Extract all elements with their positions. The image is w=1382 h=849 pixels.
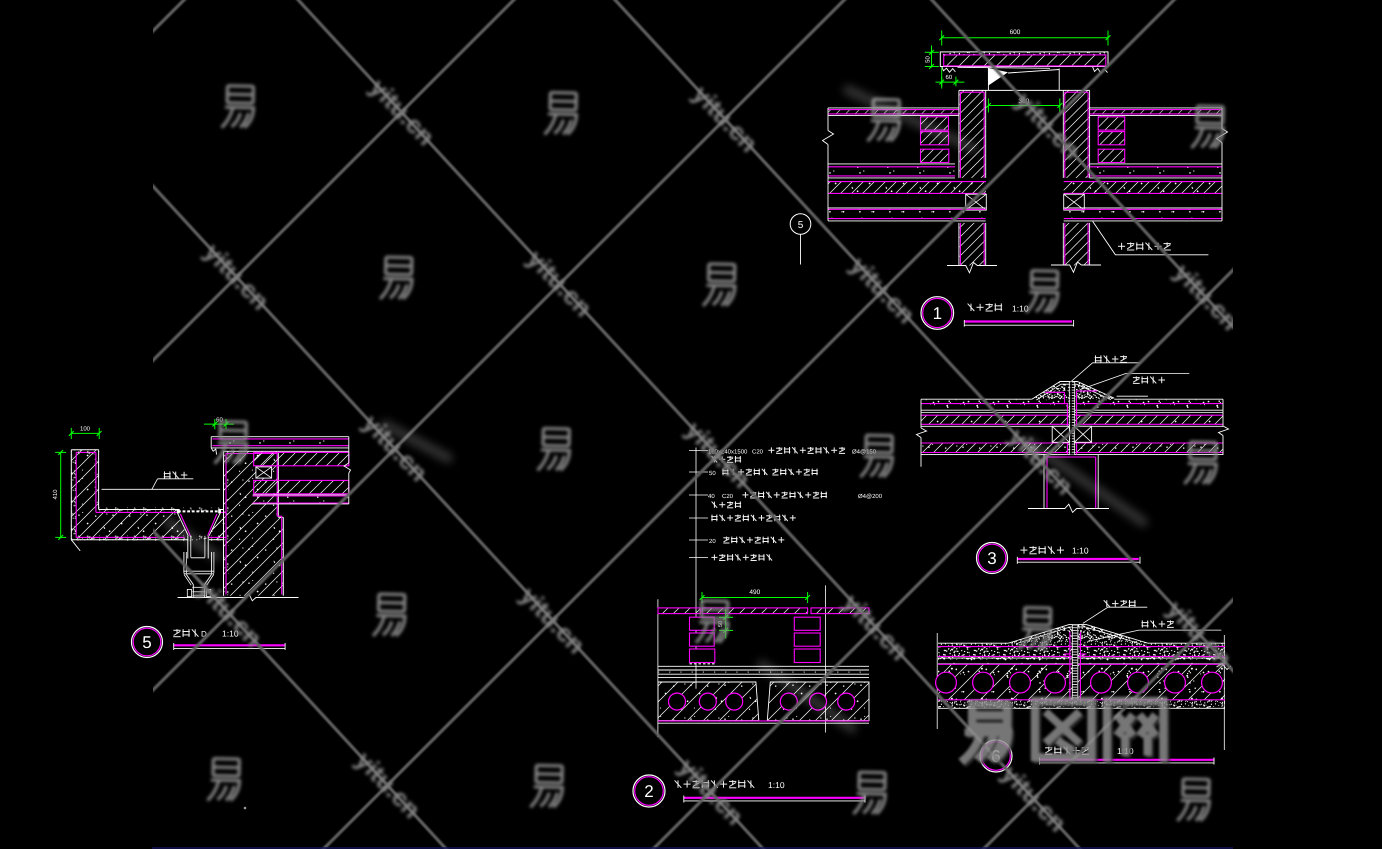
svg-text:50: 50	[925, 56, 932, 63]
svg-text:1:10: 1:10	[1072, 546, 1089, 556]
svg-text:1: 1	[933, 304, 942, 323]
svg-text:2: 2	[644, 782, 653, 801]
svg-text:100: 100	[80, 426, 91, 433]
svg-text:410: 410	[52, 489, 59, 500]
svg-text:490: 490	[749, 589, 760, 596]
svg-text:C20: C20	[722, 493, 734, 500]
svg-text:20: 20	[709, 538, 716, 545]
svg-text:Ø4@200: Ø4@200	[858, 493, 883, 500]
svg-text:C20: C20	[752, 448, 764, 455]
svg-text:5: 5	[142, 633, 151, 652]
svg-text:5: 5	[798, 220, 804, 231]
svg-text:600: 600	[1010, 29, 1021, 36]
svg-text:1:10: 1:10	[768, 780, 785, 790]
svg-text:40: 40	[708, 493, 715, 500]
svg-text:3: 3	[987, 549, 996, 568]
svg-text:60: 60	[946, 74, 953, 81]
